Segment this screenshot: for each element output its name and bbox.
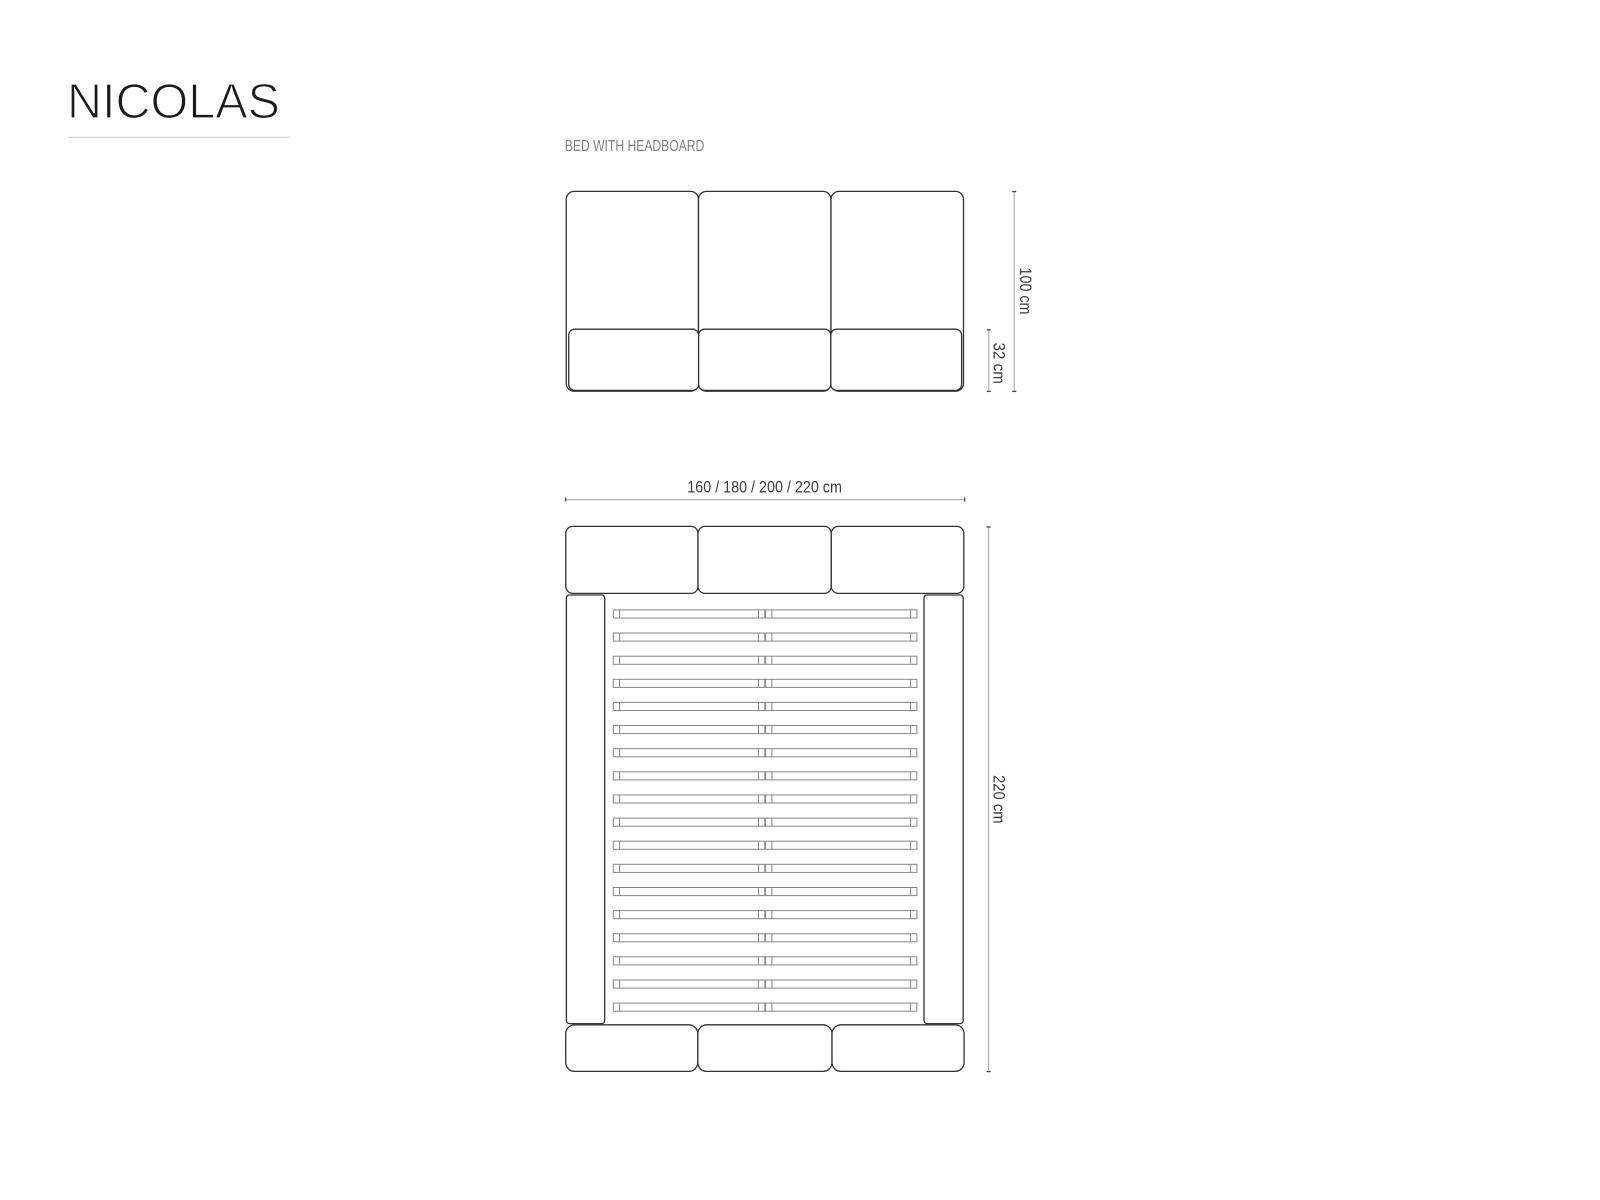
svg-text:BED WITH HEADBOARD: BED WITH HEADBOARD	[565, 138, 705, 155]
svg-text:220 cm: 220 cm	[990, 775, 1008, 824]
svg-text:100 cm: 100 cm	[1016, 268, 1034, 315]
svg-text:32 cm: 32 cm	[990, 342, 1008, 384]
svg-text:NICOLAS: NICOLAS	[67, 75, 280, 129]
svg-text:160 / 180 / 200 / 220 cm: 160 / 180 / 200 / 220 cm	[687, 478, 842, 497]
